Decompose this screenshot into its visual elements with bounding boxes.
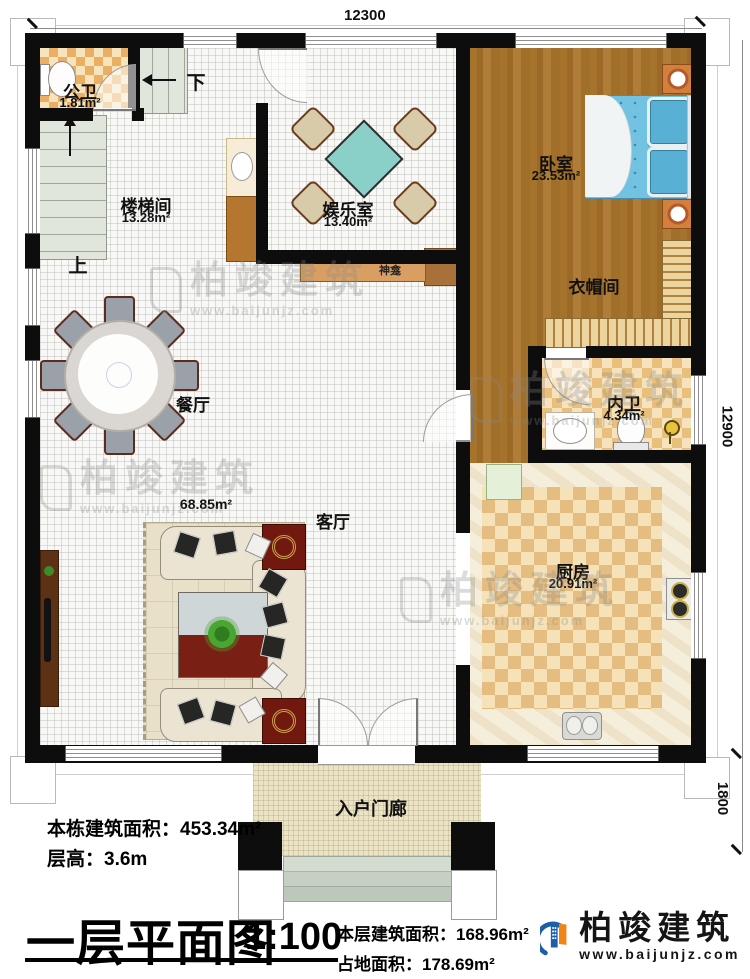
entry-door-opening [318,745,415,765]
stairs-up-label: 上 [68,251,87,278]
dimension-line-top [30,28,702,29]
shrine-label: 神龛 [379,262,401,278]
wall-stairwell-recreation [256,103,268,250]
sofa-cushion [212,530,237,555]
dimension-right: 12900 [718,406,735,448]
wall-ensuite-top-1 [528,346,546,358]
plan-title: 一层平面图 [26,904,276,975]
window-top-1 [183,33,237,48]
wall-hall-left [456,264,470,390]
coffee-table-plant [203,615,241,653]
room-label-porch: 入户门廊 [335,795,407,821]
floor-area: 本层建筑面积：168.96m² [337,920,529,945]
window-right-kitchen [691,572,706,659]
ensuite-sink [553,418,587,444]
room-label-living: 客厅 [316,508,350,533]
bed-pillow [650,100,688,144]
stairs-down-label: 下 [186,68,205,95]
stairs-down-arrow [148,79,176,81]
plan-scale: 1:100 [245,916,342,959]
window-bottom-living [65,746,222,761]
room-area-living: 68.85m² [180,496,232,512]
room-area-kitchen: 20.91m² [549,576,597,591]
hallway-floor [470,346,528,463]
room-area-stairwell: 13.28m² [122,210,170,225]
wall-bedroom-left-upper [456,48,470,250]
window-top-bedroom [515,33,667,48]
room-label-cloakroom: 衣帽间 [569,273,620,298]
corner-box-bottom-left [10,756,56,804]
lamp-icon [668,204,689,225]
stove-burner [671,600,689,618]
land-area: 占地面积：178.69m² [337,950,495,975]
tv-screen [44,598,51,662]
wall-kitchen-top [528,450,691,463]
title-underline [25,958,338,962]
kitchen-floor [482,487,662,709]
company-logo-icon [540,910,571,966]
lamp-icon [668,69,689,90]
company-logo: 柏竣建筑 www.baijunjz.com [540,910,740,972]
dimension-porch: 1800 [714,782,731,815]
dim-tick [731,844,742,855]
room-area-ensuite: 4.34m² [603,408,644,423]
dimension-line-porch [742,758,743,852]
bed-pillow [650,150,688,194]
wall-living-kitchen [456,665,470,745]
room-label-dining: 餐厅 [176,391,210,416]
floor-height: 层高：3.6m [47,844,147,871]
stairs-main-flight [39,115,107,260]
wall-recreation-bottom [256,250,470,264]
floor-plan: 12300 12900 1800 [0,0,750,979]
dimension-line-right [742,40,743,758]
dimension-top: 12300 [344,7,386,24]
nightstand [662,199,694,229]
porch-pillar-right [451,822,495,870]
washbasin-cabinet [226,196,258,262]
window-left-2 [25,268,40,326]
company-name: 柏竣建筑 [579,910,740,946]
nightstand [662,64,694,94]
kitchen-sink-bowl [582,716,598,735]
room-area-public-bath: 1.81m² [59,95,100,110]
sofa-cushion [260,634,286,660]
tv-plant [44,566,54,576]
stairs-up-arrow [69,122,71,156]
shower-arm [669,432,671,444]
window-left-1 [25,148,40,234]
medallion-icon [272,535,296,559]
stove-burner [671,582,689,600]
dining-table-center [106,362,132,388]
wall-hall-left-2 [456,440,470,533]
closet-bottom [545,318,693,348]
wall-ensuite-left [528,358,542,450]
end-table [262,698,306,744]
total-building-area: 本栋建筑面积：453.34m² [47,814,261,841]
wall-ensuite-top-2 [586,346,691,358]
dim-tick [731,748,742,759]
company-website: www.baijunjz.com [579,946,740,962]
window-top-2 [305,33,437,48]
medallion-icon [272,709,296,733]
room-area-recreation: 13.40m² [324,214,372,229]
shower-head-icon [664,420,680,436]
washbasin-sink [231,152,253,181]
room-area-bedroom: 23.53m² [532,168,580,183]
end-table [262,524,306,570]
window-bottom-kitchen [527,746,659,761]
fridge [486,464,522,500]
kitchen-sink-bowl [566,716,582,735]
window-left-3 [25,360,40,418]
window-right-ensuite [691,375,706,445]
stairs-down-arrowhead [142,74,152,86]
porch-pillar-right-base [451,870,497,920]
